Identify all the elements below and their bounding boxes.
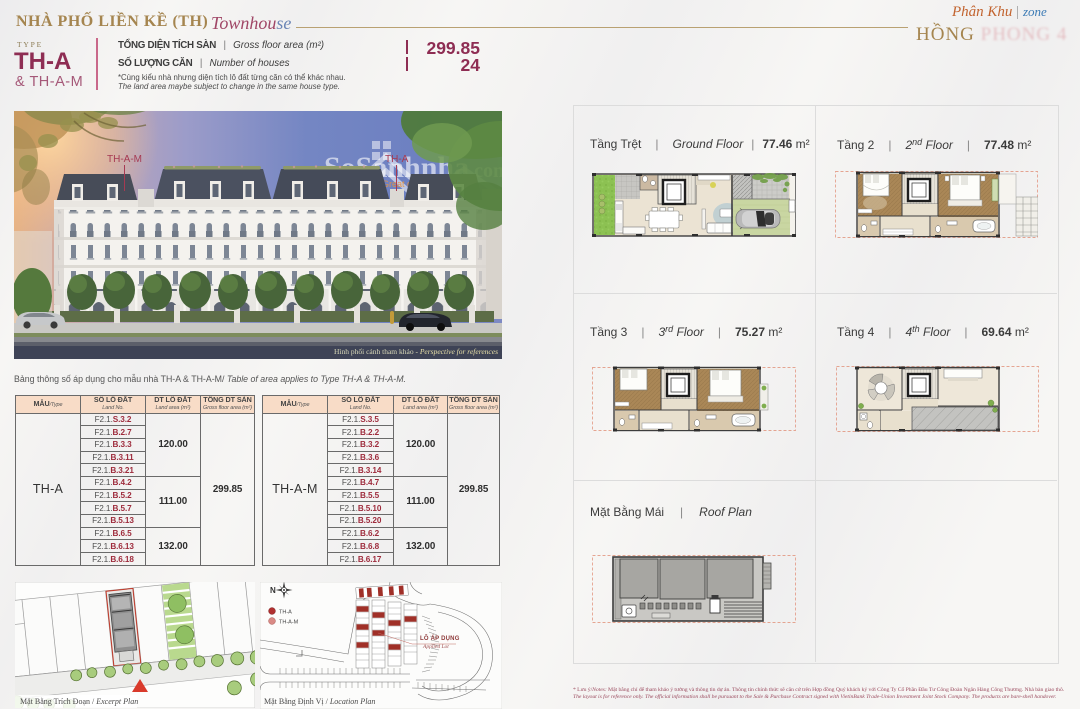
svg-text:Mặt Bằng Định Vị / Location Pl: Mặt Bằng Định Vị / Location Plan [264,697,375,706]
svg-text:Applied Lot: Applied Lot [422,644,449,650]
svg-text:Hình phối cảnh tham khảo - Per: Hình phối cảnh tham khảo - Perspective f… [334,347,498,356]
svg-text:TH-A-M: TH-A-M [107,154,142,165]
svg-text:LÔ ÁP DỤNG: LÔ ÁP DỤNG [420,634,460,642]
svg-text:TH-A-M: TH-A-M [279,620,299,626]
svg-text:TH-A: TH-A [385,154,409,165]
svg-text:TH-A: TH-A [279,610,292,616]
svg-text:Mặt Bằng Trích Đoạn / Excerpt: Mặt Bằng Trích Đoạn / Excerpt Plan [20,697,138,706]
svg-text:N: N [270,586,276,595]
